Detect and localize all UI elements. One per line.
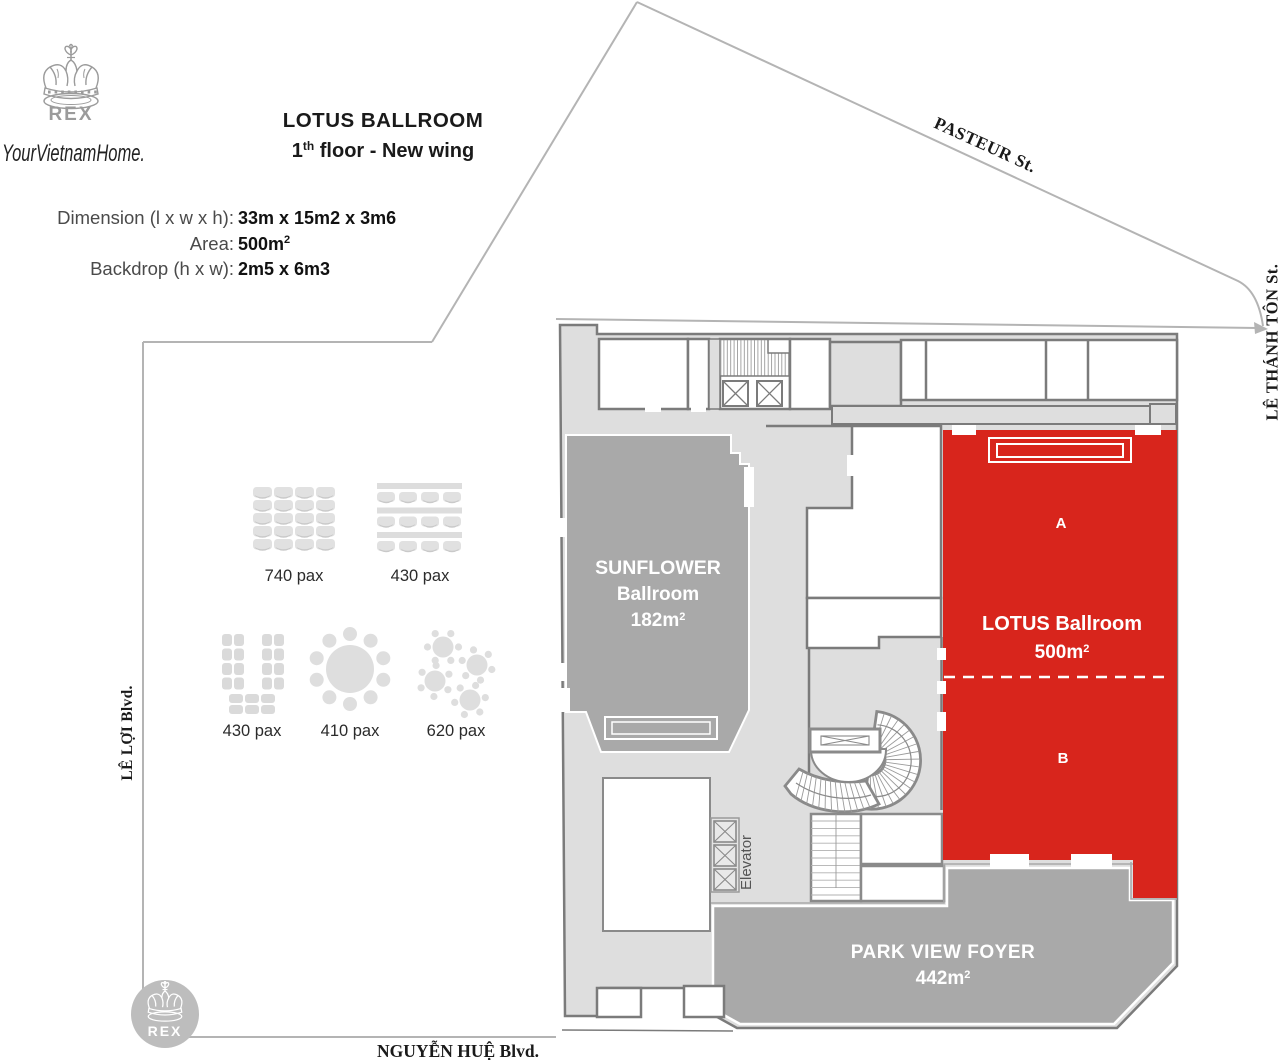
svg-text:Elevator: Elevator [738, 835, 755, 890]
svg-text:1th floor - New wing: 1th floor - New wing [292, 139, 474, 162]
svg-text:LÊ LỢI Blvd.: LÊ LỢI Blvd. [119, 685, 136, 780]
svg-text:B: B [1058, 750, 1069, 767]
svg-text:620 pax: 620 pax [427, 722, 486, 740]
svg-text:2m5 x 6m3: 2m5 x 6m3 [238, 259, 330, 279]
svg-text:500m2: 500m2 [1035, 642, 1090, 663]
svg-text:182m2: 182m2 [631, 610, 686, 631]
svg-text:REX: REX [148, 1023, 183, 1039]
svg-text:LOTUS Ballroom: LOTUS Ballroom [982, 613, 1142, 635]
svg-text:YourVietnamHome.: YourVietnamHome. [2, 140, 145, 167]
svg-text:SUNFLOWER: SUNFLOWER [595, 557, 721, 579]
svg-text:Backdrop (h x w):: Backdrop (h x w): [90, 258, 234, 279]
svg-text:430 pax: 430 pax [391, 567, 450, 585]
svg-text:LOTUS BALLROOM: LOTUS BALLROOM [283, 109, 484, 132]
svg-text:Ballroom: Ballroom [617, 584, 699, 605]
svg-text:Area:: Area: [190, 233, 234, 254]
svg-text:500m2: 500m2 [238, 234, 290, 254]
svg-text:A: A [1056, 515, 1067, 532]
svg-text:740 pax: 740 pax [265, 567, 324, 585]
svg-text:PASTEUR St.: PASTEUR St. [931, 113, 1040, 177]
svg-text:LÊ THÁNH TÔN St.: LÊ THÁNH TÔN St. [1263, 264, 1280, 421]
svg-text:Dimension (l x w x h):: Dimension (l x w x h): [57, 207, 234, 228]
svg-text:410 pax: 410 pax [321, 722, 380, 740]
svg-text:NGUYỄN HUỆ Blvd.: NGUYỄN HUỆ Blvd. [377, 1041, 539, 1060]
svg-text:33m x 15m2 x 3m6: 33m x 15m2 x 3m6 [238, 208, 396, 228]
svg-text:442m2: 442m2 [916, 968, 971, 989]
svg-text:PARK VIEW FOYER: PARK VIEW FOYER [851, 942, 1036, 963]
svg-text:REX: REX [48, 104, 93, 125]
svg-text:430 pax: 430 pax [223, 722, 282, 740]
